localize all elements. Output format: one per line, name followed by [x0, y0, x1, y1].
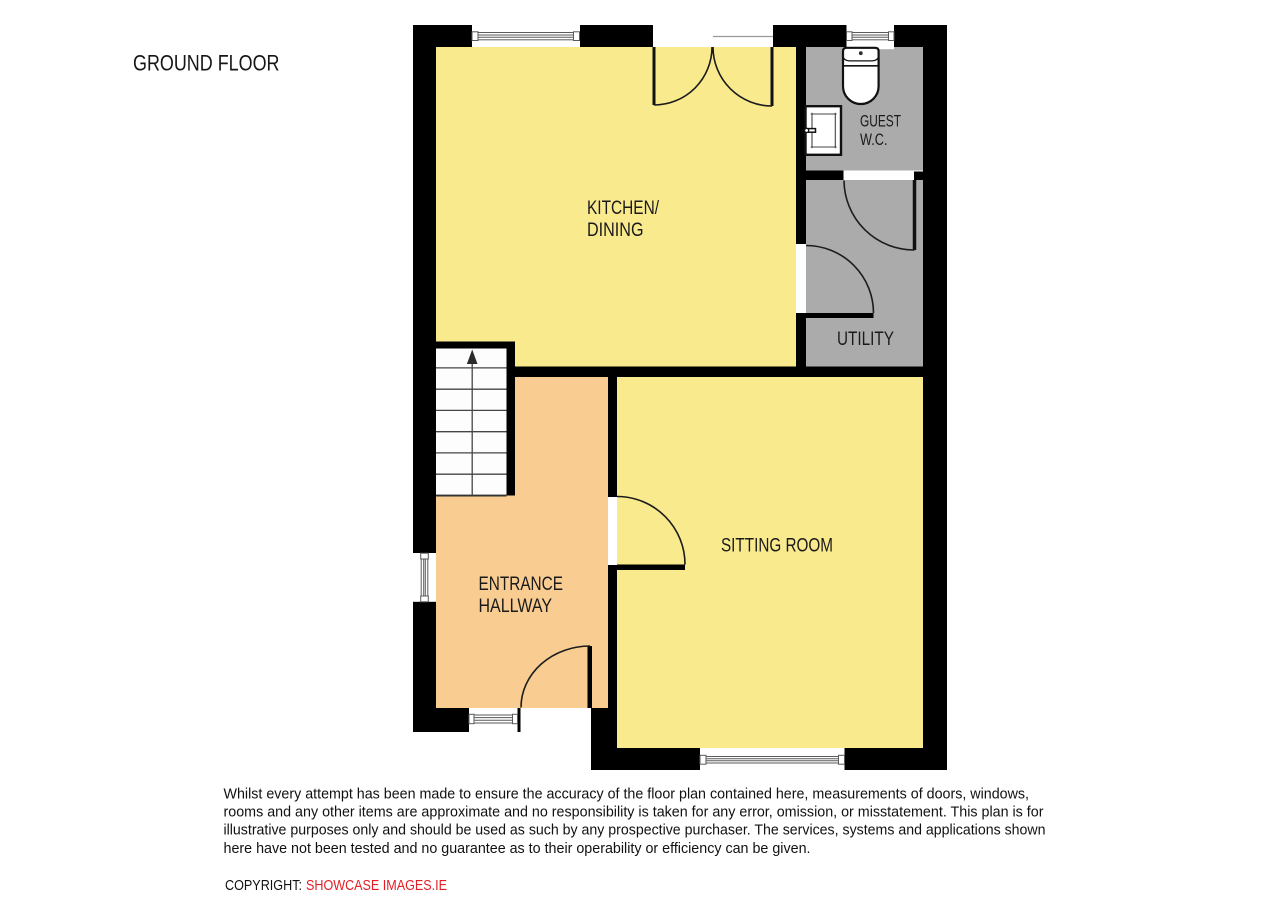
svg-text:SHOWCASE IMAGES.IE: SHOWCASE IMAGES.IE	[306, 877, 447, 894]
svg-text:KITCHEN/: KITCHEN/	[587, 197, 659, 219]
svg-text:GUEST: GUEST	[860, 113, 901, 131]
svg-text:ENTRANCE: ENTRANCE	[479, 573, 564, 595]
svg-text:COPYRIGHT:: COPYRIGHT:	[225, 877, 302, 894]
svg-text:here have not been tested and: here have not been tested and no guarant…	[224, 840, 811, 857]
svg-text:illustrative purposes only and: illustrative purposes only and should be…	[224, 822, 1046, 839]
svg-text:Whilst every attempt has been: Whilst every attempt has been made to en…	[224, 786, 1030, 803]
svg-text:DINING: DINING	[587, 219, 644, 241]
svg-text:GROUND FLOOR: GROUND FLOOR	[133, 50, 280, 75]
svg-text:SITTING ROOM: SITTING ROOM	[721, 535, 833, 557]
svg-text:UTILITY: UTILITY	[837, 328, 894, 350]
svg-text:rooms and any other items are: rooms and any other items are approximat…	[224, 804, 1044, 821]
svg-text:HALLWAY: HALLWAY	[479, 595, 553, 617]
svg-text:W.C.: W.C.	[860, 131, 888, 149]
